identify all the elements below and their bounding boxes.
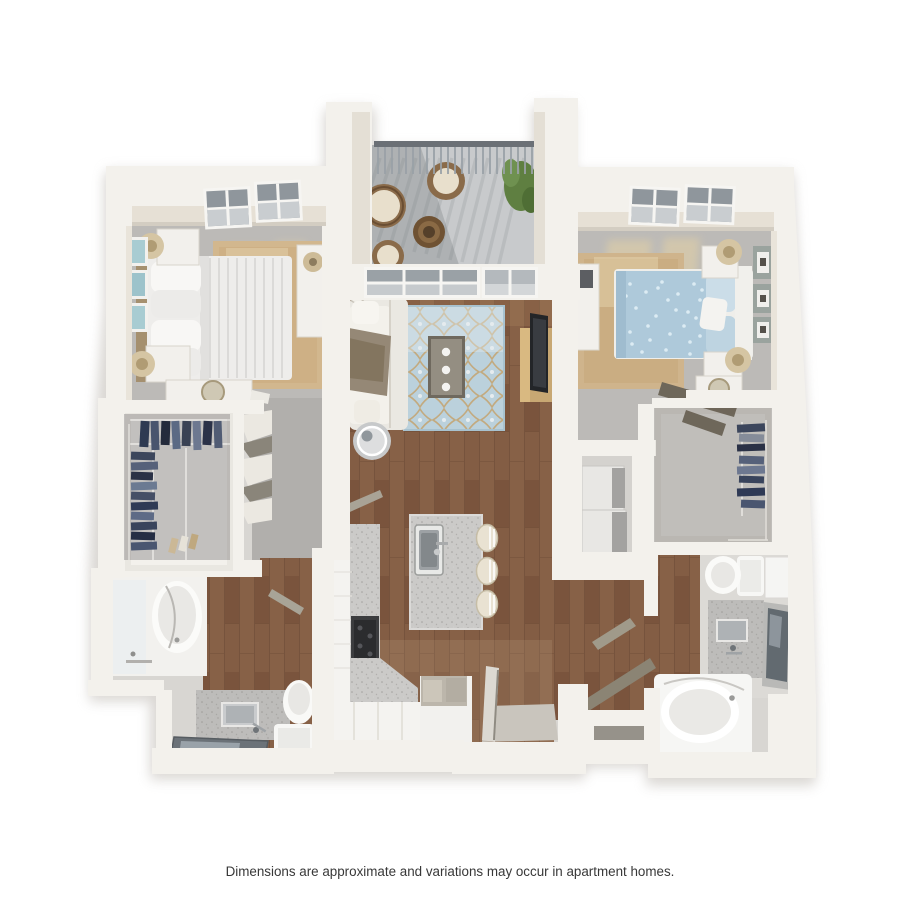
svg-text:Dimensions are approximate and: Dimensions are approximate and variation… xyxy=(226,864,675,879)
